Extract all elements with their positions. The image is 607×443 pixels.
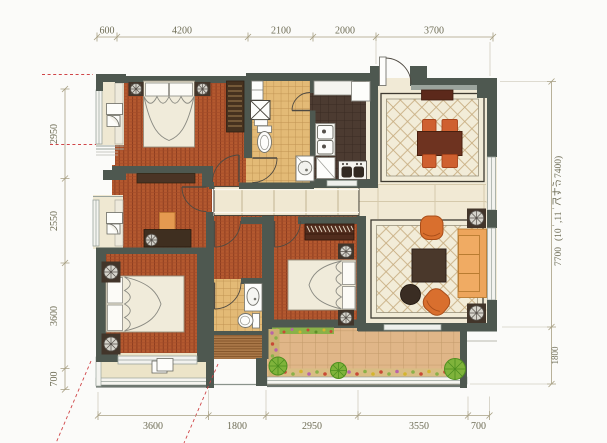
svg-text:3700: 3700: [424, 26, 444, 37]
svg-text:700: 700: [49, 372, 60, 387]
svg-text:1800: 1800: [227, 421, 247, 432]
svg-text:2550: 2550: [49, 211, 60, 231]
svg-text:': ': [552, 208, 560, 209]
svg-text:600: 600: [100, 26, 115, 37]
svg-text:7400): 7400): [553, 156, 564, 178]
svg-text:3600: 3600: [143, 421, 163, 432]
svg-text:3550: 3550: [409, 421, 429, 432]
svg-text:7700: 7700: [554, 247, 564, 266]
svg-text:700: 700: [471, 421, 486, 432]
svg-text:3600: 3600: [49, 306, 60, 326]
svg-text:2950: 2950: [302, 421, 322, 432]
svg-text:1800: 1800: [550, 346, 560, 365]
svg-text:2100: 2100: [271, 26, 291, 37]
svg-text:2950: 2950: [49, 124, 60, 144]
svg-text:2000: 2000: [335, 26, 355, 37]
svg-text:(10: (10: [553, 228, 564, 241]
svg-text:,11: ,11: [554, 211, 564, 223]
svg-text:4200: 4200: [172, 26, 192, 37]
svg-text:': ': [552, 225, 560, 226]
